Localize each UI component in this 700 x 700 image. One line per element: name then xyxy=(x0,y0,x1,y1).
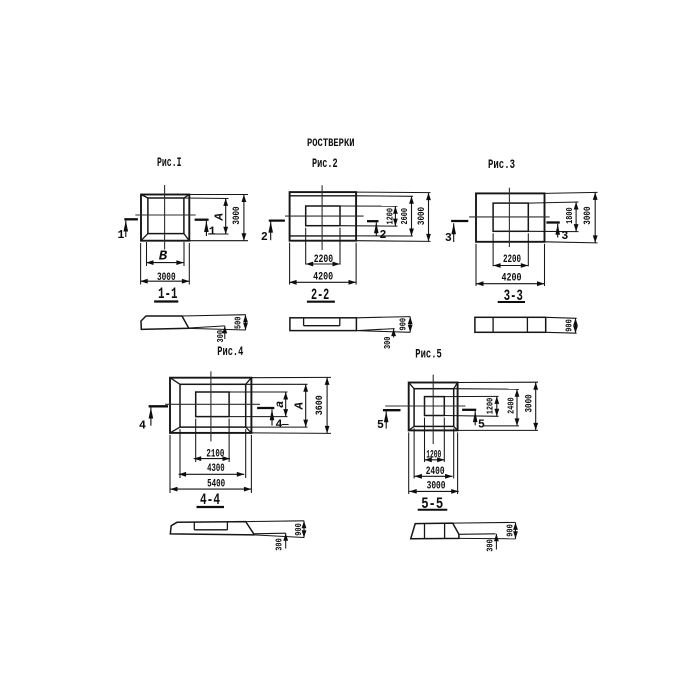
svg-text:1-1: 1-1 xyxy=(158,285,178,303)
svg-text:900: 900 xyxy=(505,524,516,537)
svg-text:a: a xyxy=(273,401,287,408)
svg-text:5: 5 xyxy=(478,419,485,432)
svg-text:1200: 1200 xyxy=(426,449,441,461)
svg-text:900: 900 xyxy=(293,523,304,536)
svg-text:4: 4 xyxy=(139,420,146,433)
svg-text:900: 900 xyxy=(563,319,574,332)
svg-text:1200: 1200 xyxy=(485,398,496,415)
svg-text:2200: 2200 xyxy=(503,254,521,266)
svg-text:300: 300 xyxy=(485,539,496,552)
svg-text:4300: 4300 xyxy=(207,463,225,475)
svg-text:2400: 2400 xyxy=(426,466,445,478)
svg-text:3000: 3000 xyxy=(427,481,446,493)
svg-text:Рис.I: Рис.I xyxy=(157,155,182,170)
svg-text:2400: 2400 xyxy=(506,397,517,414)
svg-text:2600: 2600 xyxy=(399,208,410,225)
svg-text:РОСТВЕРКИ: РОСТВЕРКИ xyxy=(307,138,355,150)
svg-text:4200: 4200 xyxy=(502,273,522,285)
svg-text:3: 3 xyxy=(561,230,568,243)
svg-text:1: 1 xyxy=(209,226,216,239)
svg-text:3000: 3000 xyxy=(583,207,594,225)
svg-text:2: 2 xyxy=(261,231,268,244)
svg-text:3000: 3000 xyxy=(417,207,428,225)
svg-text:Рис.4: Рис.4 xyxy=(217,344,243,359)
svg-text:300: 300 xyxy=(215,330,226,343)
svg-text:2200: 2200 xyxy=(314,254,333,266)
svg-text:2100: 2100 xyxy=(206,448,224,460)
svg-text:5: 5 xyxy=(377,419,384,432)
svg-text:Рис.3: Рис.3 xyxy=(488,157,515,172)
svg-text:1: 1 xyxy=(118,229,125,242)
svg-text:900: 900 xyxy=(398,318,409,331)
svg-text:3: 3 xyxy=(445,232,452,245)
svg-text:3000: 3000 xyxy=(525,394,536,412)
svg-text:500: 500 xyxy=(233,316,244,329)
svg-text:А: А xyxy=(213,213,227,221)
svg-text:3000: 3000 xyxy=(157,272,176,284)
svg-text:4200: 4200 xyxy=(313,271,333,283)
svg-text:3600: 3600 xyxy=(315,395,326,415)
svg-text:5400: 5400 xyxy=(207,478,225,490)
svg-text:А: А xyxy=(293,402,307,410)
svg-text:4: 4 xyxy=(276,419,283,432)
svg-text:1200: 1200 xyxy=(385,208,396,225)
svg-text:300: 300 xyxy=(274,538,285,551)
svg-text:1800: 1800 xyxy=(564,207,575,224)
svg-text:В: В xyxy=(159,249,168,265)
svg-text:300: 300 xyxy=(382,336,393,349)
svg-text:Рис.5: Рис.5 xyxy=(415,347,442,362)
svg-text:3000: 3000 xyxy=(232,206,243,224)
svg-text:Рис.2: Рис.2 xyxy=(312,156,338,171)
